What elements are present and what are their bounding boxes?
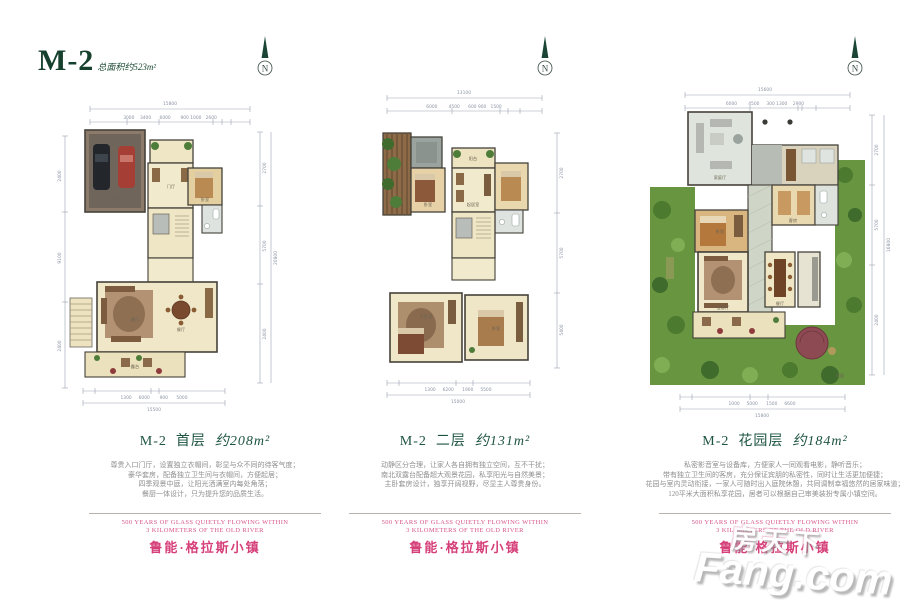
dimension-right: 2700 5700 2400 16800 bbox=[869, 115, 892, 375]
room-label: 卧室 bbox=[492, 325, 500, 332]
bathtub-icon bbox=[213, 209, 219, 219]
caption-floor: 二层 bbox=[436, 434, 466, 449]
column bbox=[787, 119, 792, 124]
dim-total: 16800 bbox=[886, 238, 892, 252]
caption-area: 约184m² bbox=[792, 434, 847, 449]
total-area: 总面积约523m² bbox=[97, 62, 156, 72]
dim-label: 2700 bbox=[262, 162, 268, 173]
tagline: 500 YEARS OF GLASS QUIETLY FLOWING WITHI… bbox=[75, 519, 335, 535]
compass-icon: N bbox=[536, 36, 554, 80]
caption-garden-level: M-2 花园层 约184m² bbox=[655, 430, 895, 450]
dim-label: 2700 bbox=[874, 144, 880, 155]
room-label: 客房 bbox=[789, 217, 797, 224]
plant-icon bbox=[136, 355, 142, 361]
room-label: 车库 bbox=[111, 195, 119, 202]
tree-icon bbox=[667, 316, 685, 334]
tree-icon bbox=[846, 297, 862, 313]
dimension-top: 13100 6000 4500 600 900 1500 bbox=[387, 90, 542, 114]
description-line: 餐厨一体设计，只为提升您的品质生活。 bbox=[70, 490, 340, 500]
chair-icon bbox=[768, 263, 772, 267]
sofa-icon bbox=[710, 161, 732, 169]
master-bedroom bbox=[390, 293, 462, 362]
description-line: 尊贵入口门厅，设置独立衣帽间，彰显与众不同的待客气度； bbox=[70, 461, 340, 471]
floorplan-second-floor: 13100 6000 4500 600 900 1500 2700 5700 5… bbox=[352, 78, 577, 423]
description-line: 带有独立卫生间的客房，充分保证宾朋的私密性，同时让生活更加便捷； bbox=[640, 471, 900, 481]
room-label: 餐厅 bbox=[776, 300, 784, 307]
garden-bench bbox=[666, 257, 674, 279]
compass-needle-icon bbox=[852, 36, 859, 58]
sofa-icon bbox=[704, 256, 728, 261]
flower-icon bbox=[717, 328, 723, 334]
description-garden-level: 私密影音室与设备库，方便家人一同观看电影，静听音乐； 带有独立卫生间的客房，充分… bbox=[640, 461, 900, 499]
dim-label: 5700 bbox=[559, 247, 565, 258]
dim-label: 2400 bbox=[57, 340, 63, 351]
bed-pillow bbox=[478, 310, 504, 317]
cabinet bbox=[786, 149, 796, 181]
elevator bbox=[153, 214, 169, 234]
vine-icon bbox=[382, 178, 394, 190]
living-dining-room bbox=[97, 282, 217, 352]
kitchen-counter bbox=[812, 257, 818, 301]
hallway bbox=[148, 258, 193, 282]
bedroom-topright bbox=[495, 163, 528, 210]
rug-pattern bbox=[113, 296, 145, 332]
tree-icon bbox=[671, 238, 685, 252]
sideboard bbox=[205, 288, 213, 318]
hallway bbox=[452, 258, 495, 280]
dim-label: 2400 bbox=[57, 170, 63, 181]
room-label: 露台 bbox=[131, 363, 139, 370]
dim-label: 5400 bbox=[559, 324, 565, 335]
plant-icon bbox=[151, 142, 159, 150]
compass-label: N bbox=[852, 63, 859, 73]
room-label: 会客厅 bbox=[717, 304, 730, 311]
sofa-icon bbox=[696, 123, 704, 153]
dim-total: 15500 bbox=[147, 407, 161, 413]
sofa-icon bbox=[105, 286, 135, 292]
plant-icon bbox=[184, 142, 192, 150]
dim-segments: 1300 6200 1900 5500 bbox=[424, 387, 491, 393]
compass-icon: N bbox=[256, 36, 274, 80]
room-label: 花园 bbox=[836, 372, 844, 379]
chair-icon bbox=[788, 275, 792, 279]
plant-icon bbox=[94, 355, 100, 361]
floorplan-sheet: M-2总面积约523m² N N N 15800 3000 3400 6000 … bbox=[0, 0, 900, 600]
room-label: 餐厅 bbox=[177, 326, 185, 333]
car-red-icon bbox=[118, 146, 135, 188]
chair-icon bbox=[179, 295, 184, 300]
sofa-icon bbox=[710, 119, 732, 127]
cabinet bbox=[456, 190, 464, 202]
sofa-icon bbox=[101, 298, 107, 324]
room-label: 卧室 bbox=[716, 228, 724, 235]
caption-floor: 花园层 bbox=[738, 434, 783, 449]
page-title: M-2总面积约523m² bbox=[38, 44, 156, 78]
dimension-right: 2700 5700 5400 bbox=[554, 133, 565, 368]
dim-label: 2400 bbox=[262, 328, 268, 339]
room-label: 主卧室 bbox=[420, 313, 433, 320]
bathroom bbox=[815, 185, 838, 225]
chair-icon bbox=[788, 287, 792, 291]
chair-icon bbox=[768, 287, 772, 291]
description-second-floor: 动静区分合理，让家人各自拥有独立空间，互不干扰； 南北双露台配备超大观景花园，私… bbox=[330, 461, 600, 490]
bed-pillow bbox=[501, 171, 521, 177]
chair-icon bbox=[192, 308, 197, 313]
patio-table-icon bbox=[143, 358, 152, 367]
dim-label: 5700 bbox=[262, 240, 268, 251]
bathtub-icon bbox=[512, 214, 519, 226]
brand-name: 鲁能·格拉斯小镇 bbox=[335, 537, 595, 556]
sofa-icon bbox=[111, 336, 141, 342]
dim-label: 2700 bbox=[559, 167, 565, 178]
plant-icon bbox=[486, 150, 494, 158]
dim-total: 13100 bbox=[457, 90, 471, 96]
dim-segments: 6000 4500 300 1300 2900 bbox=[726, 101, 804, 107]
bed-icon bbox=[797, 191, 810, 215]
caption-area: 约208m² bbox=[215, 434, 270, 449]
tagline-line2: 3 KILOMETERS OF THE OLD RIVER bbox=[335, 527, 595, 535]
chair-icon bbox=[768, 275, 772, 279]
utility-rooms bbox=[752, 145, 838, 185]
rug-pattern bbox=[711, 266, 735, 294]
description-line: 动静区分合理，让家人各自拥有独立空间，互不干扰； bbox=[330, 461, 600, 471]
tree-icon bbox=[782, 362, 798, 378]
compass-label: N bbox=[262, 63, 269, 73]
patio-paving bbox=[416, 142, 437, 163]
dim-segments: 1000 5000 1500 6600 bbox=[728, 401, 795, 407]
tree-icon bbox=[653, 201, 671, 219]
patio-table-icon bbox=[732, 317, 741, 326]
patio-table-icon bbox=[702, 317, 711, 326]
bed-pillow bbox=[700, 216, 726, 223]
divider bbox=[349, 513, 581, 514]
dimension-top: 15600 6000 4500 300 1300 2900 bbox=[685, 87, 850, 111]
description-first-floor: 尊贵入口门厅，设置独立衣帽间，彰显与众不同的待客气度； 豪华套房，配备独立卫生间… bbox=[70, 461, 340, 499]
compass-label: N bbox=[542, 63, 549, 73]
description-line: 主卧套房设计，独享开阔视野，尽显主人尊贵身份。 bbox=[330, 480, 600, 490]
caption-code: M-2 bbox=[400, 434, 427, 449]
dim-label: 5700 bbox=[874, 219, 880, 230]
dim-label: 2400 bbox=[874, 314, 880, 325]
dim-segments: 6000 4500 600 900 1500 bbox=[426, 104, 502, 110]
vine-icon bbox=[387, 157, 401, 171]
dining-room bbox=[765, 252, 795, 307]
description-line: 豪华套房，配备独立卫生间与衣帽间，方便起居； bbox=[70, 471, 340, 481]
dimension-top: 15800 3000 3400 6000 900 1000 2600 bbox=[90, 101, 250, 125]
room-label: 卧室 bbox=[201, 196, 209, 203]
room-label: 家庭厅 bbox=[714, 174, 727, 181]
dimension-right: 2700 5700 2400 20800 bbox=[257, 132, 279, 383]
stair-core bbox=[452, 212, 495, 258]
elevator bbox=[456, 218, 472, 238]
tagline-line2: 3 KILOMETERS OF THE OLD RIVER bbox=[75, 527, 335, 535]
plan-code: M-2 bbox=[38, 44, 94, 77]
compass-needle-icon bbox=[542, 36, 549, 58]
description-line: 私密影音室与设备库，方便家人一同观看电影，静听音乐； bbox=[640, 461, 900, 471]
tree-icon bbox=[742, 367, 758, 383]
brand-name: 鲁能·格拉斯小镇 bbox=[75, 537, 335, 556]
pergola-trellis bbox=[382, 133, 411, 215]
tree-icon bbox=[837, 167, 853, 183]
dining-table-icon bbox=[172, 301, 190, 319]
caption-first-floor: M-2 首层 约208m² bbox=[85, 430, 325, 450]
tree-icon bbox=[652, 277, 668, 293]
plant-icon bbox=[469, 347, 475, 353]
description-line: 南北双露台配备超大观景花园，私享阳光与自然美景； bbox=[330, 471, 600, 481]
description-line: 四季观景中庭，让阳光洒满室内每处角落； bbox=[70, 480, 340, 490]
toilet-icon bbox=[204, 223, 209, 228]
wardrobe bbox=[484, 174, 491, 196]
dim-segments: 3000 3400 6000 900 1000 2600 bbox=[123, 115, 217, 121]
description-line: 花园与室内灵动衔接，一家人可随时出入庭院休憩，共同调制幸福悠然的居家味道； bbox=[640, 480, 900, 490]
exterior-stairs bbox=[70, 298, 92, 347]
floorplan-first-floor: 15800 3000 3400 6000 900 1000 2600 2400 … bbox=[55, 88, 345, 418]
compass-icon: N bbox=[846, 36, 864, 80]
parlor bbox=[698, 252, 748, 312]
caption-code: M-2 bbox=[702, 434, 729, 449]
column bbox=[762, 119, 767, 124]
cabinet bbox=[456, 173, 464, 185]
flower-icon bbox=[156, 368, 162, 374]
chair-icon bbox=[166, 308, 171, 313]
storage-room bbox=[752, 145, 782, 185]
chair-icon bbox=[788, 263, 792, 267]
dim-total: 15600 bbox=[758, 87, 772, 93]
coffee-table-icon bbox=[710, 133, 724, 145]
dimension-bottom: 1300 6000 900 5000 15500 bbox=[83, 388, 225, 413]
toilet-icon bbox=[821, 212, 826, 217]
wardrobe bbox=[734, 215, 743, 237]
compass-needle-icon bbox=[262, 36, 269, 58]
tree-icon bbox=[848, 208, 862, 222]
dim-total: 15800 bbox=[163, 101, 177, 107]
roof-patio bbox=[411, 137, 442, 168]
room-label: 阳台 bbox=[469, 155, 477, 162]
wardrobe bbox=[448, 300, 456, 324]
bed-icon bbox=[778, 191, 791, 215]
dim-total: 15800 bbox=[755, 413, 769, 419]
room-label: 门厅 bbox=[167, 183, 175, 190]
bathroom-small bbox=[820, 149, 834, 163]
caption-code: M-2 bbox=[140, 434, 167, 449]
dim-total: 15000 bbox=[451, 399, 465, 405]
tagline: 500 YEARS OF GLASS QUIETLY FLOWING WITHI… bbox=[335, 519, 595, 535]
room-label: 起居室 bbox=[467, 201, 480, 208]
plant-icon bbox=[453, 150, 461, 158]
room-label: 客厅 bbox=[131, 316, 139, 323]
tree-icon bbox=[654, 357, 670, 373]
chair-icon bbox=[179, 321, 184, 326]
bed-pillow bbox=[398, 328, 424, 334]
dimension-bottom: 1000 5000 1500 6600 15800 bbox=[680, 394, 845, 419]
divider bbox=[89, 513, 321, 514]
tv-icon bbox=[733, 134, 743, 144]
flower-icon bbox=[110, 368, 116, 374]
bathroom bbox=[202, 205, 222, 233]
caption-floor: 首层 bbox=[176, 434, 206, 449]
car-windshield bbox=[95, 154, 108, 162]
terrace bbox=[693, 312, 785, 338]
plant-icon bbox=[773, 317, 779, 323]
tagline-line1: 500 YEARS OF GLASS QUIETLY FLOWING WITHI… bbox=[335, 519, 595, 527]
car-windshield bbox=[120, 155, 133, 162]
floorplan-garden-level: 15600 6000 4500 300 1300 2900 2700 5700 … bbox=[640, 75, 895, 430]
toilet-icon bbox=[499, 219, 504, 224]
tree-icon bbox=[836, 252, 852, 268]
patio-table-icon bbox=[121, 358, 130, 367]
dining-table-icon bbox=[774, 259, 786, 297]
fang-watermark-logo: 房天下 Fang.com bbox=[693, 514, 900, 600]
room-label: 卧室 bbox=[424, 201, 432, 208]
cabinet bbox=[152, 168, 160, 182]
bathtub-icon bbox=[820, 191, 827, 203]
flower-icon bbox=[749, 328, 755, 334]
bathroom bbox=[495, 210, 523, 233]
vine-icon bbox=[390, 196, 402, 208]
dim-total: 20800 bbox=[273, 251, 279, 265]
caption-area: 约131m² bbox=[475, 434, 530, 449]
garden-table-icon bbox=[828, 347, 836, 355]
car-dark-icon bbox=[93, 144, 110, 190]
wardrobe bbox=[516, 302, 523, 342]
entry-porch bbox=[150, 140, 193, 163]
bed-pillow bbox=[195, 172, 213, 178]
divider bbox=[659, 513, 891, 514]
kitchen bbox=[798, 252, 820, 307]
vine-icon bbox=[382, 138, 394, 150]
bed-pillow bbox=[415, 174, 435, 180]
caption-second-floor: M-2 二层 约131m² bbox=[345, 430, 585, 450]
dimension-left: 2400 9100 2400 bbox=[57, 136, 68, 388]
stair-core bbox=[148, 208, 193, 258]
dimension-bottom: 1300 6200 1900 5500 15000 bbox=[387, 380, 530, 405]
description-line: 120平米大面积私享花园，居者可以根据自己审美装扮专属小镇空间。 bbox=[640, 490, 900, 500]
bathroom-small bbox=[802, 149, 816, 163]
tree-icon bbox=[701, 361, 719, 379]
dim-segments: 1300 6000 900 5000 bbox=[120, 395, 187, 401]
tagline-line1: 500 YEARS OF GLASS QUIETLY FLOWING WITHI… bbox=[75, 519, 335, 527]
dim-label: 9100 bbox=[57, 252, 63, 263]
